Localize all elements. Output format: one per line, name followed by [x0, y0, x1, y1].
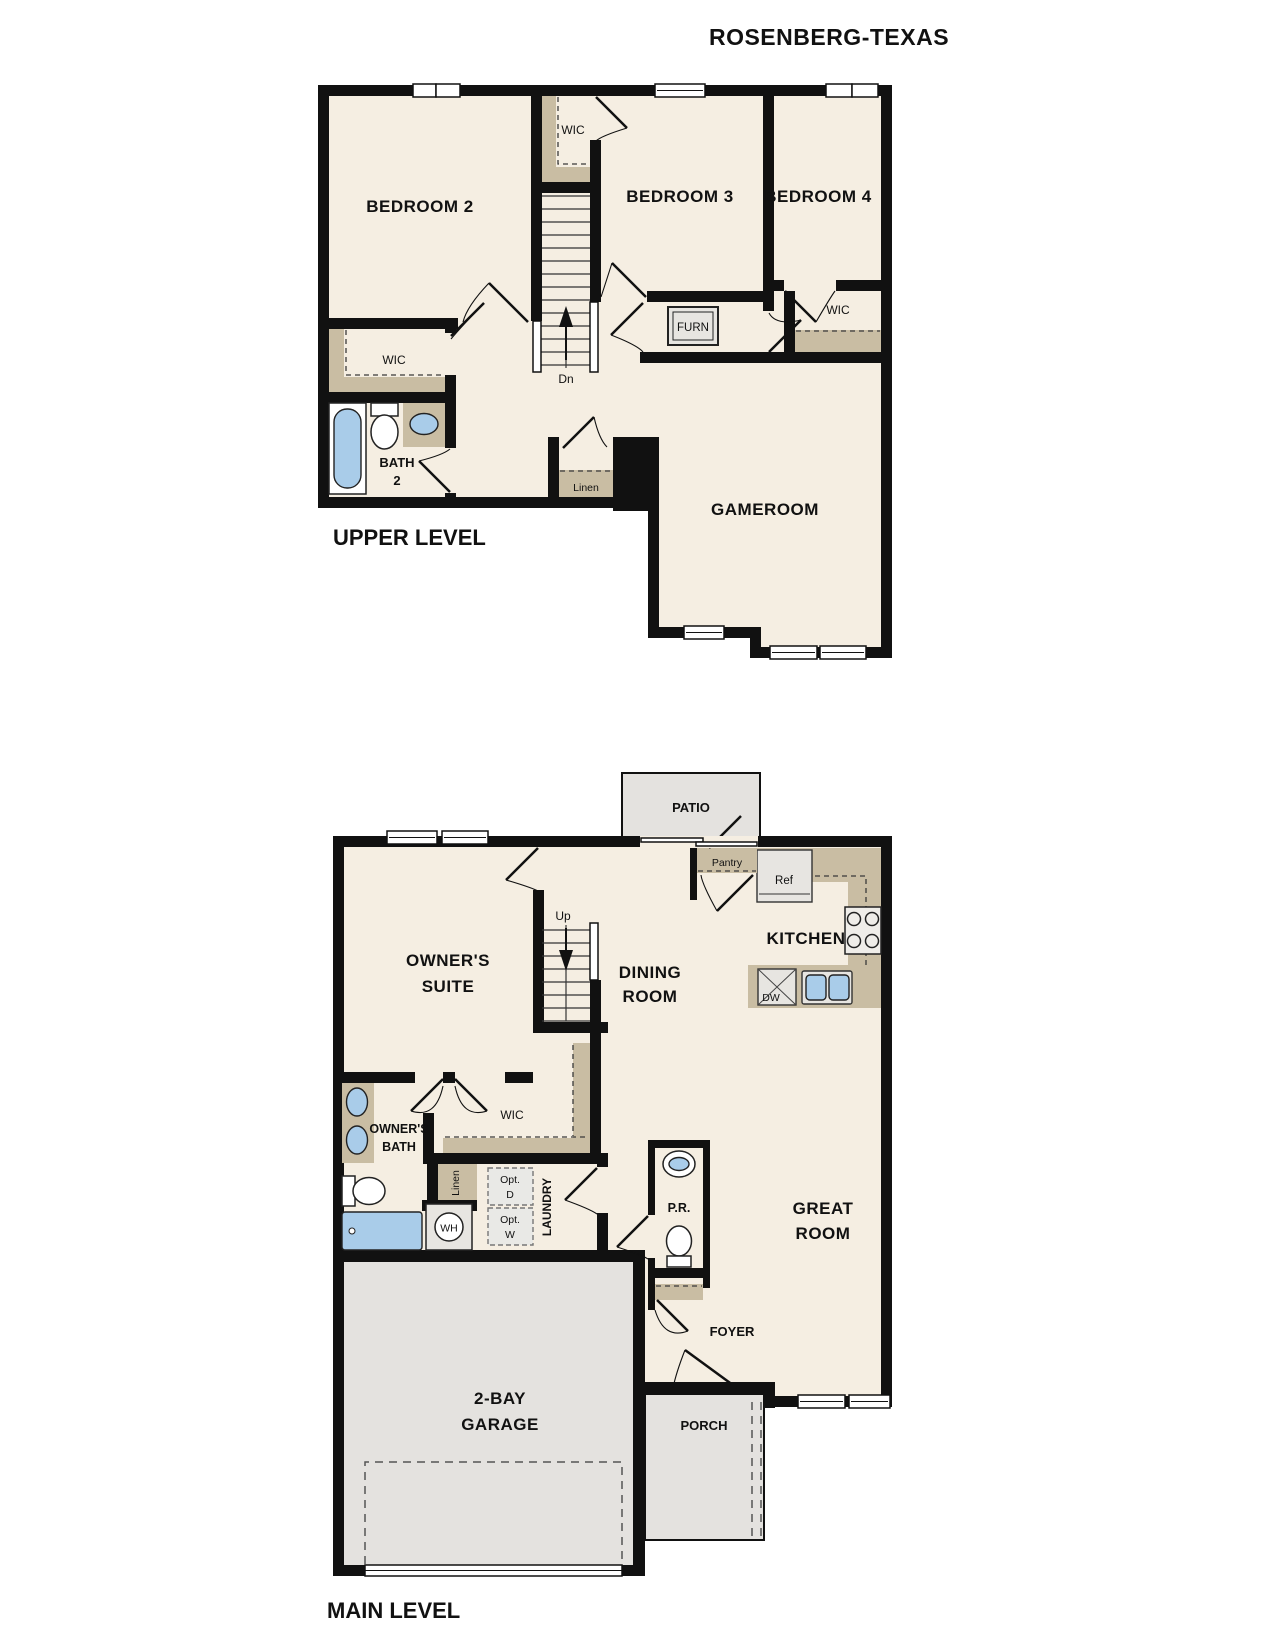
- dw-label: DW: [762, 992, 780, 1004]
- toilet-icon: [667, 1226, 692, 1256]
- dining-label-line1: DINING: [619, 963, 682, 982]
- opt-w-line1: Opt.: [500, 1214, 520, 1226]
- toilet-icon: [371, 415, 398, 449]
- bathtub-basin-icon: [334, 409, 361, 488]
- great-room-label-line1: GREAT: [793, 1199, 854, 1218]
- furn-label: FURN: [677, 322, 709, 334]
- opt-d-line1: Opt.: [500, 1174, 520, 1186]
- bath2-label-line2: 2: [393, 473, 400, 488]
- stairs-up-label: Up: [555, 909, 571, 923]
- upper-level-title: UPPER LEVEL: [333, 525, 486, 550]
- linen-main-label: Linen: [450, 1170, 462, 1196]
- kitchen-label: KITCHEN: [766, 929, 845, 948]
- ref-label: Ref: [775, 875, 794, 887]
- opt-w-line2: W: [505, 1229, 515, 1241]
- garage-label-line2: GARAGE: [461, 1415, 539, 1434]
- stairs-dn-label: Dn: [558, 372, 573, 386]
- toilet-tank-icon: [667, 1256, 691, 1267]
- garage-floor: [344, 1262, 633, 1565]
- owners-suite-label-line1: OWNER'S: [406, 951, 490, 970]
- wic-bedroom3-label: WIC: [561, 123, 585, 137]
- powder-room-label: P.R.: [668, 1201, 691, 1215]
- furnace-unit: FURN: [668, 307, 718, 345]
- wic-main-label: WIC: [500, 1108, 524, 1122]
- owners-suite-label-line2: SUITE: [422, 977, 475, 996]
- owners-bath-label-line1: OWNER'S: [369, 1122, 428, 1136]
- main-level-title: MAIN LEVEL: [327, 1598, 460, 1623]
- wic-bedroom2-label: WIC: [382, 353, 406, 367]
- bedroom3-label: BEDROOM 3: [626, 187, 733, 206]
- sink-icon: [347, 1088, 368, 1116]
- plan-title: ROSENBERG-TEXAS: [709, 24, 949, 50]
- wic-bedroom4-label: WIC: [826, 303, 850, 317]
- main-level-plan: PATIO PORCH DW Ref: [327, 773, 890, 1623]
- bedroom4-label: BEDROOM 4: [764, 187, 872, 206]
- upper-level-plan: Dn FURN: [318, 84, 892, 659]
- opt-d-line2: D: [506, 1189, 514, 1201]
- floorplan-page: ROSENBERG-TEXAS: [0, 0, 1275, 1650]
- toilet-icon: [353, 1178, 385, 1205]
- floorplan-drawing: ROSENBERG-TEXAS: [0, 0, 1275, 1650]
- porch-label: PORCH: [681, 1418, 728, 1433]
- laundry-label: LAUNDRY: [540, 1178, 554, 1236]
- gameroom-label: GAMEROOM: [711, 500, 819, 519]
- dining-label-line2: ROOM: [623, 987, 678, 1006]
- pantry-label: Pantry: [712, 857, 743, 869]
- toilet-tank-icon: [371, 403, 398, 416]
- water-heater: WH: [426, 1204, 472, 1250]
- sink-icon: [410, 414, 438, 435]
- porch-area: [645, 1394, 764, 1540]
- bedroom2-label: BEDROOM 2: [366, 197, 473, 216]
- upper-outer-walls: [324, 91, 887, 653]
- great-room-label-line2: ROOM: [796, 1224, 851, 1243]
- patio-label: PATIO: [672, 800, 710, 815]
- bath2-label-line1: BATH: [379, 455, 414, 470]
- sink-icon: [347, 1126, 368, 1154]
- wh-label: WH: [440, 1223, 458, 1235]
- foyer-label: FOYER: [710, 1324, 755, 1339]
- linen-upper-label: Linen: [573, 482, 599, 494]
- owners-bath-label-line2: BATH: [382, 1140, 416, 1154]
- garage-label-line1: 2-BAY: [474, 1389, 526, 1408]
